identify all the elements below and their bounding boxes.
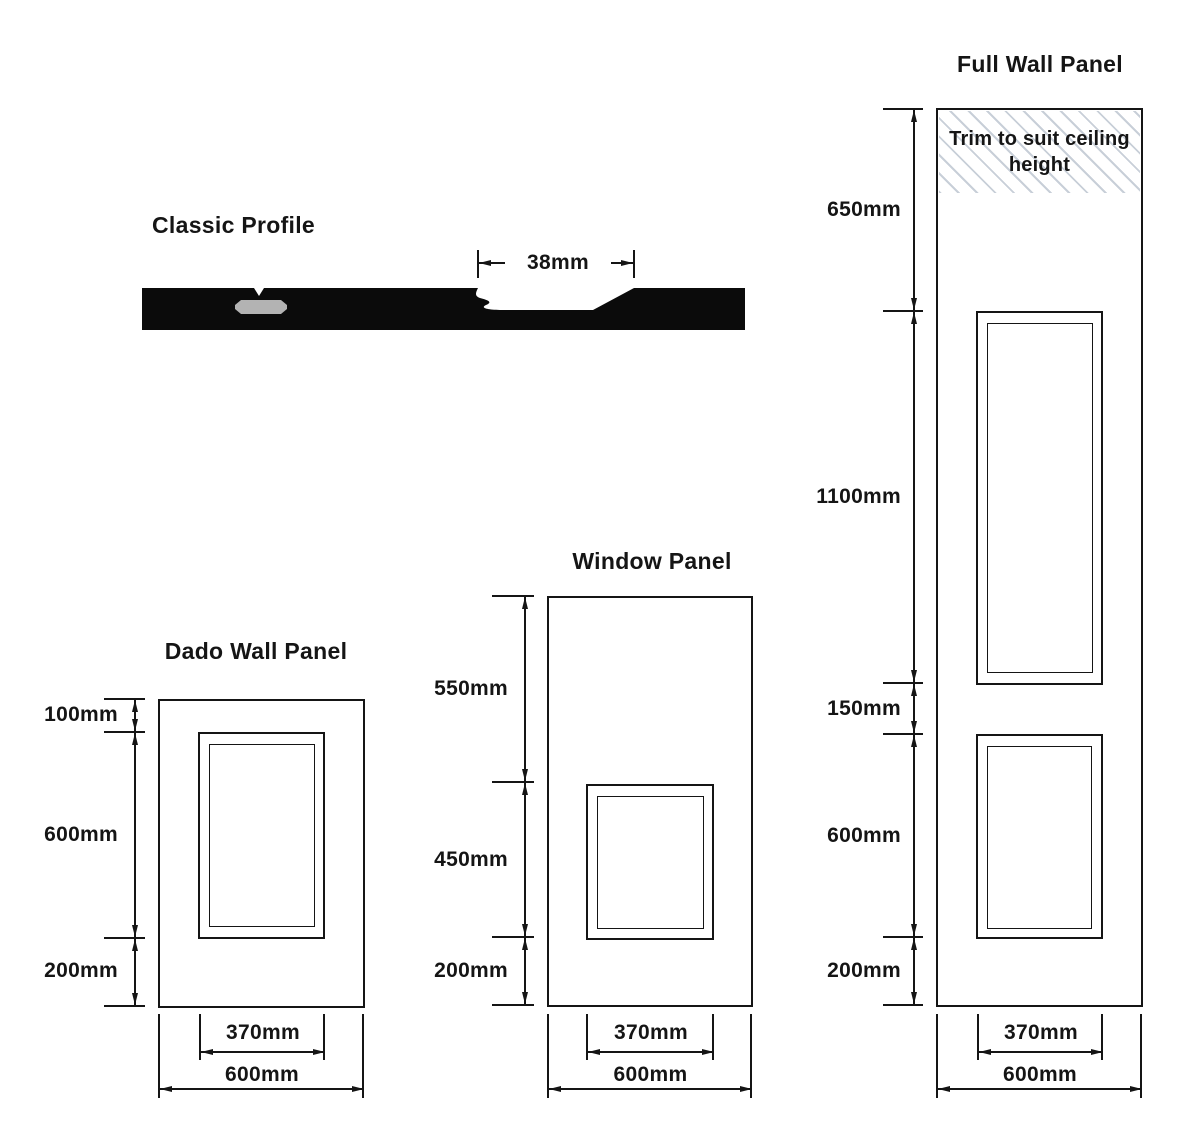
window-top-section-arrow <box>524 597 526 781</box>
classic-profile-cross-section <box>142 288 745 330</box>
window-outer-width-arrow <box>549 1088 752 1090</box>
full-dim-label: 650mm <box>796 197 901 223</box>
dimension-tick <box>633 250 635 278</box>
window-moulding-inner-frame <box>597 796 704 929</box>
full-dim-label: 150mm <box>796 696 901 722</box>
dimension-tick <box>104 1005 145 1007</box>
dado-outer-width-arrow <box>160 1088 364 1090</box>
window-dim-label: 450mm <box>408 847 508 873</box>
full-panel-title: Full Wall Panel <box>940 51 1140 78</box>
full-width-label: 600mm <box>938 1062 1142 1088</box>
dado-panel-title: Dado Wall Panel <box>156 638 356 665</box>
dimension-tick <box>883 310 923 312</box>
dimension-tick <box>492 1004 534 1006</box>
full-lower-panel-height-arrow <box>913 735 915 936</box>
full-outer-width-arrow <box>938 1088 1142 1090</box>
full-trim-section-arrow <box>913 110 915 310</box>
dimension-tick <box>883 682 923 684</box>
window-bottom-margin-arrow <box>524 938 526 1004</box>
full-upper-panel-height-arrow <box>913 312 915 682</box>
full-width-label: 370mm <box>979 1020 1103 1046</box>
window-panel-height-arrow <box>524 783 526 936</box>
dimension-tick <box>883 108 923 110</box>
window-panel-title: Window Panel <box>550 548 754 575</box>
trim-note: Trim to suit ceiling height <box>946 126 1133 178</box>
groove-width-label: 38mm <box>505 250 611 276</box>
full-dim-label: 1100mm <box>796 484 901 510</box>
dado-width-label: 600mm <box>160 1062 364 1088</box>
dimension-tick <box>104 731 145 733</box>
dado-inner-width-arrow <box>201 1051 325 1053</box>
full-dim-label: 600mm <box>796 823 901 849</box>
full-mid-rail-arrow <box>913 684 915 733</box>
dado-moulding-inner-frame <box>209 744 315 927</box>
full-dim-label: 200mm <box>796 958 901 984</box>
dimension-tick <box>883 936 923 938</box>
profile-board <box>142 288 745 330</box>
dado-dim-label: 600mm <box>18 822 118 848</box>
window-width-label: 600mm <box>549 1062 752 1088</box>
full-lower-moulding-inner-frame <box>987 746 1092 929</box>
full-inner-width-arrow <box>979 1051 1103 1053</box>
window-dim-label: 550mm <box>408 676 508 702</box>
dado-panel-height-arrow <box>134 733 136 937</box>
dimension-tick <box>883 733 923 735</box>
window-dim-label: 200mm <box>408 958 508 984</box>
dado-dim-label: 200mm <box>18 958 118 984</box>
full-bottom-margin-arrow <box>913 938 915 1004</box>
dado-width-label: 370mm <box>201 1020 325 1046</box>
classic-profile-title: Classic Profile <box>152 212 315 239</box>
dimension-tick <box>104 698 145 700</box>
window-inner-width-arrow <box>588 1051 714 1053</box>
dado-top-margin-arrow <box>134 700 136 731</box>
dado-bottom-margin-arrow <box>134 939 136 1005</box>
biscuit-slot <box>235 300 287 314</box>
dimension-tick <box>883 1004 923 1006</box>
window-width-label: 370mm <box>588 1020 714 1046</box>
wall-panel-dimension-diagram: Classic Profile 38mm Dado Wall Panel 100… <box>0 0 1200 1146</box>
dado-dim-label: 100mm <box>18 702 118 728</box>
dimension-tick <box>104 937 145 939</box>
full-upper-moulding-inner-frame <box>987 323 1093 673</box>
